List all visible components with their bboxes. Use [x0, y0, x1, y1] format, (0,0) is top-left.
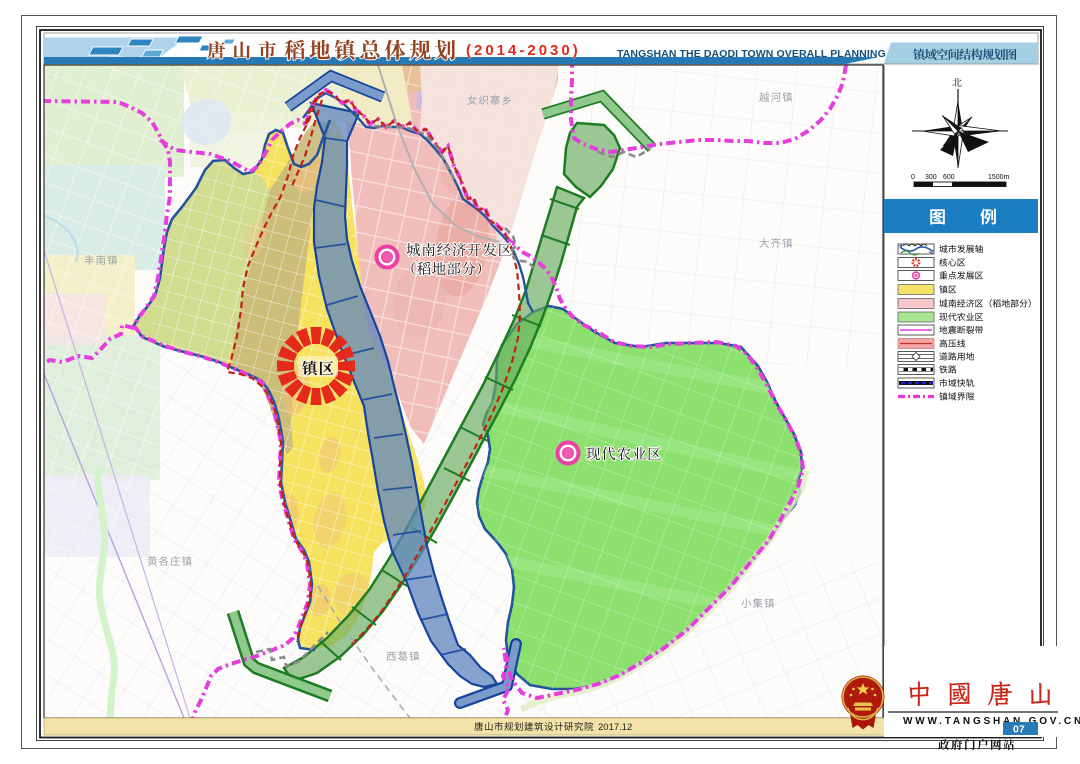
- svg-text:TANGSHAN THE DAODI TOWN OVERAL: TANGSHAN THE DAODI TOWN OVERALL PLANNING: [617, 48, 886, 60]
- svg-text:0: 0: [911, 174, 915, 181]
- svg-text:600: 600: [943, 174, 955, 181]
- svg-text:WWW.TANGSHAN.GOV.CN: WWW.TANGSHAN.GOV.CN: [903, 716, 1080, 727]
- svg-text:300: 300: [925, 174, 937, 181]
- svg-text:1500m: 1500m: [988, 174, 1010, 181]
- svg-text:(2014-2030): (2014-2030): [466, 42, 581, 59]
- svg-text:2017.12: 2017.12: [598, 722, 632, 733]
- svg-text:07: 07: [1013, 724, 1025, 736]
